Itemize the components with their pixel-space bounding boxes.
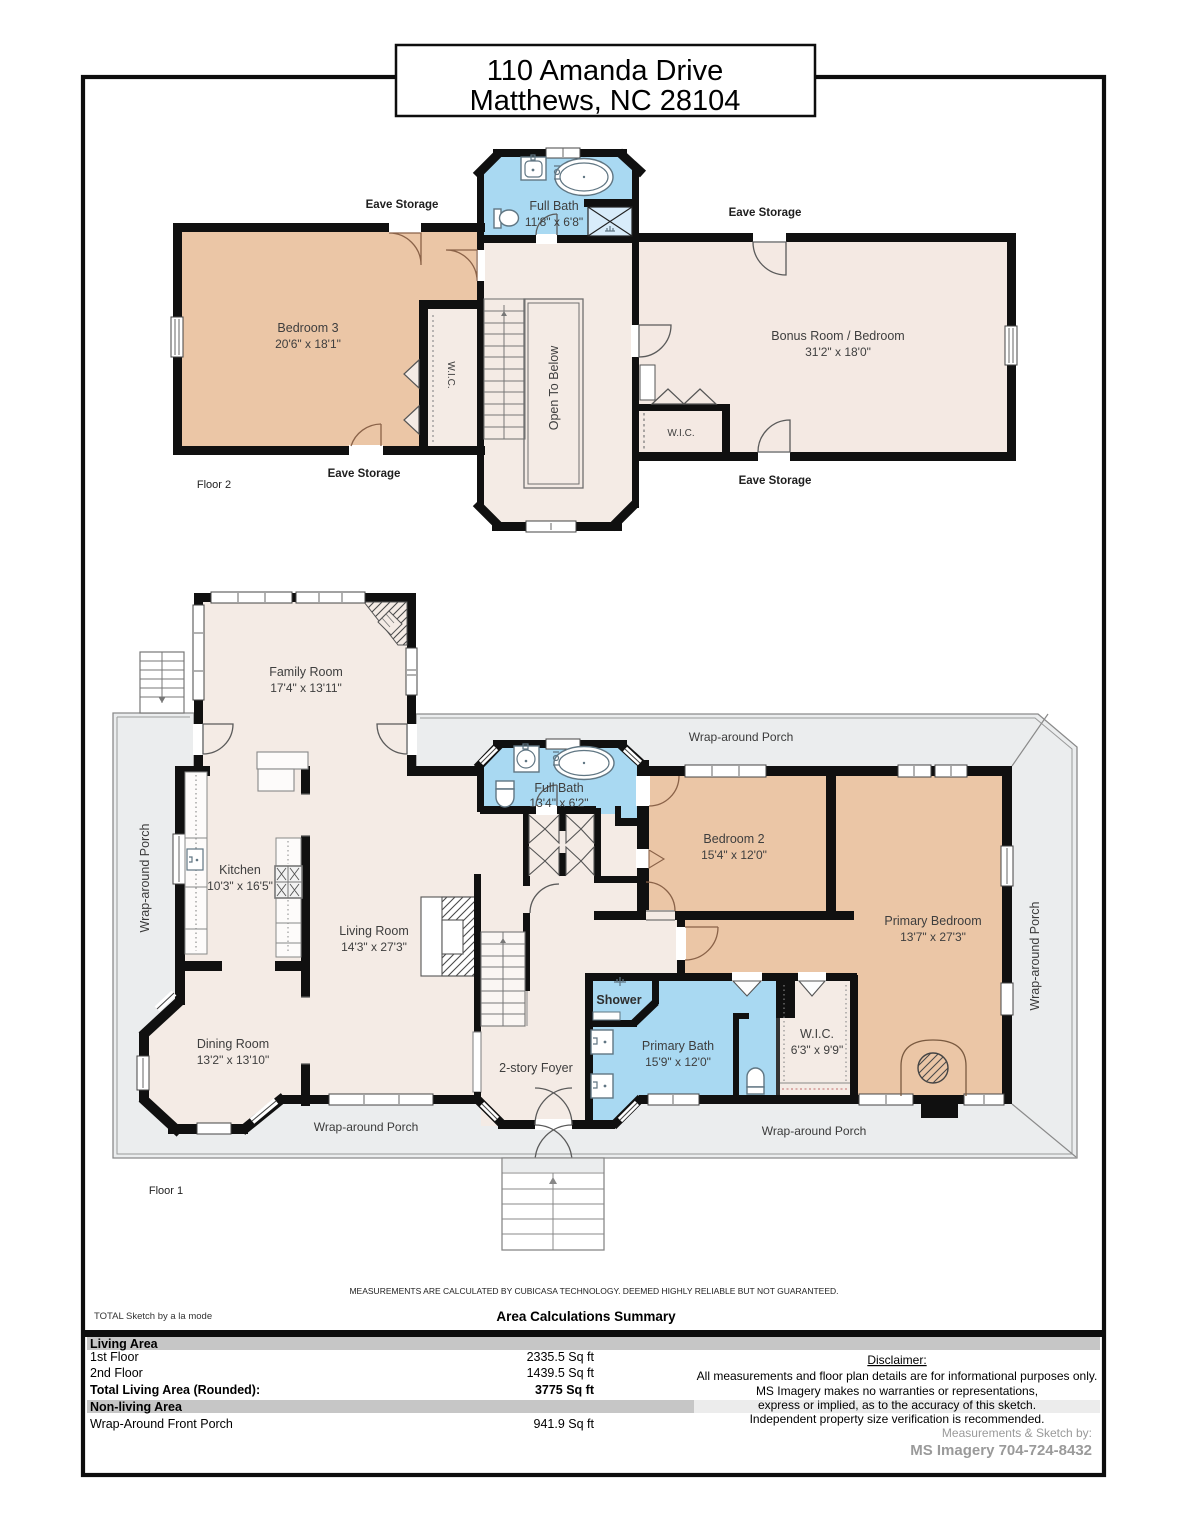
svg-text:17'4" x 13'11": 17'4" x 13'11" (270, 681, 342, 695)
svg-text:Family Room: Family Room (269, 665, 343, 679)
svg-text:110 Amanda Drive: 110 Amanda Drive (487, 55, 723, 87)
svg-text:Primary Bedroom: Primary Bedroom (884, 914, 981, 928)
svg-text:Eave Storage: Eave Storage (739, 475, 812, 487)
svg-text:Primary Bath: Primary Bath (642, 1039, 714, 1053)
svg-text:Kitchen: Kitchen (219, 863, 261, 877)
svg-text:Independent property size veri: Independent property size verification i… (750, 1412, 1045, 1426)
svg-text:Disclaimer:: Disclaimer: (867, 1353, 926, 1367)
svg-text:Full Bath: Full Bath (534, 781, 583, 795)
svg-text:Floor 2: Floor 2 (197, 479, 231, 491)
svg-text:10'3" x 16'5": 10'3" x 16'5" (207, 879, 273, 893)
svg-text:Eave Storage: Eave Storage (328, 468, 401, 480)
svg-text:20'6" x 18'1": 20'6" x 18'1" (275, 337, 341, 351)
svg-text:Non-living Area: Non-living Area (90, 1400, 183, 1414)
svg-text:Measurements & Sketch by:: Measurements & Sketch by: (942, 1426, 1092, 1440)
svg-text:Living Room: Living Room (339, 924, 408, 938)
svg-text:31'2" x 18'0": 31'2" x 18'0" (805, 345, 871, 359)
svg-text:14'3" x 27'3": 14'3" x 27'3" (341, 940, 407, 954)
svg-text:Wrap-around Porch: Wrap-around Porch (689, 730, 794, 744)
svg-text:Matthews, NC 28104: Matthews, NC 28104 (470, 85, 741, 117)
svg-text:1439.5 Sq ft: 1439.5 Sq ft (527, 1366, 595, 1380)
svg-text:13'7" x 27'3": 13'7" x 27'3" (900, 930, 966, 944)
svg-text:Total Living Area (Rounded):: Total Living Area (Rounded): (90, 1383, 260, 1397)
svg-text:Eave Storage: Eave Storage (729, 207, 802, 219)
svg-text:TOTAL Sketch by a la mode: TOTAL Sketch by a la mode (94, 1311, 212, 1322)
svg-text:13'4" x 6'2": 13'4" x 6'2" (529, 796, 588, 810)
svg-text:Bedroom 3: Bedroom 3 (277, 321, 338, 335)
svg-text:W.I.C.: W.I.C. (445, 361, 456, 388)
svg-text:W.I.C.: W.I.C. (667, 428, 694, 439)
svg-text:11'8" x 6'8": 11'8" x 6'8" (525, 215, 583, 229)
svg-text:Bonus Room / Bedroom: Bonus Room / Bedroom (771, 329, 904, 343)
svg-text:All measurements and floor pla: All measurements and floor plan details … (697, 1369, 1098, 1383)
svg-text:MS Imagery makes no warranties: MS Imagery makes no warranties or repres… (756, 1384, 1038, 1398)
svg-text:express or implied, as to the: express or implied, as to the accuracy o… (758, 1398, 1036, 1412)
svg-text:Wrap-around Porch: Wrap-around Porch (1028, 902, 1042, 1011)
svg-text:Full Bath: Full Bath (529, 199, 578, 213)
svg-text:Open To Below: Open To Below (547, 345, 561, 431)
svg-text:941.9 Sq ft: 941.9 Sq ft (534, 1417, 595, 1431)
svg-text:MS Imagery 704-724-8432: MS Imagery 704-724-8432 (910, 1442, 1092, 1459)
svg-text:Living Area: Living Area (90, 1337, 159, 1351)
svg-text:Area Calculations Summary: Area Calculations Summary (496, 1309, 676, 1324)
svg-text:3775 Sq ft: 3775 Sq ft (535, 1383, 595, 1397)
svg-text:Wrap-around Porch: Wrap-around Porch (138, 824, 152, 933)
svg-text:Shower: Shower (596, 993, 641, 1007)
svg-text:Bedroom 2: Bedroom 2 (703, 832, 764, 846)
svg-text:Wrap-Around Front Porch: Wrap-Around Front Porch (90, 1417, 233, 1431)
svg-text:15'4" x 12'0": 15'4" x 12'0" (701, 848, 767, 862)
svg-text:2-story Foyer: 2-story Foyer (499, 1061, 573, 1075)
svg-text:Wrap-around Porch: Wrap-around Porch (314, 1120, 419, 1134)
svg-text:MEASUREMENTS ARE CALCULATED BY: MEASUREMENTS ARE CALCULATED BY CUBICASA … (349, 1286, 838, 1296)
svg-text:Dining Room: Dining Room (197, 1037, 269, 1051)
svg-text:6'3" x 9'9": 6'3" x 9'9" (791, 1043, 843, 1057)
svg-text:Floor 1: Floor 1 (149, 1185, 183, 1197)
svg-text:W.I.C.: W.I.C. (800, 1027, 834, 1041)
svg-text:2nd Floor: 2nd Floor (90, 1366, 143, 1380)
svg-text:2335.5 Sq ft: 2335.5 Sq ft (527, 1350, 595, 1364)
svg-text:1st Floor: 1st Floor (90, 1350, 139, 1364)
svg-text:13'2" x 13'10": 13'2" x 13'10" (197, 1053, 270, 1067)
svg-text:15'9" x 12'0": 15'9" x 12'0" (645, 1055, 711, 1069)
svg-text:Eave Storage: Eave Storage (366, 199, 439, 211)
svg-text:Wrap-around Porch: Wrap-around Porch (762, 1124, 867, 1138)
